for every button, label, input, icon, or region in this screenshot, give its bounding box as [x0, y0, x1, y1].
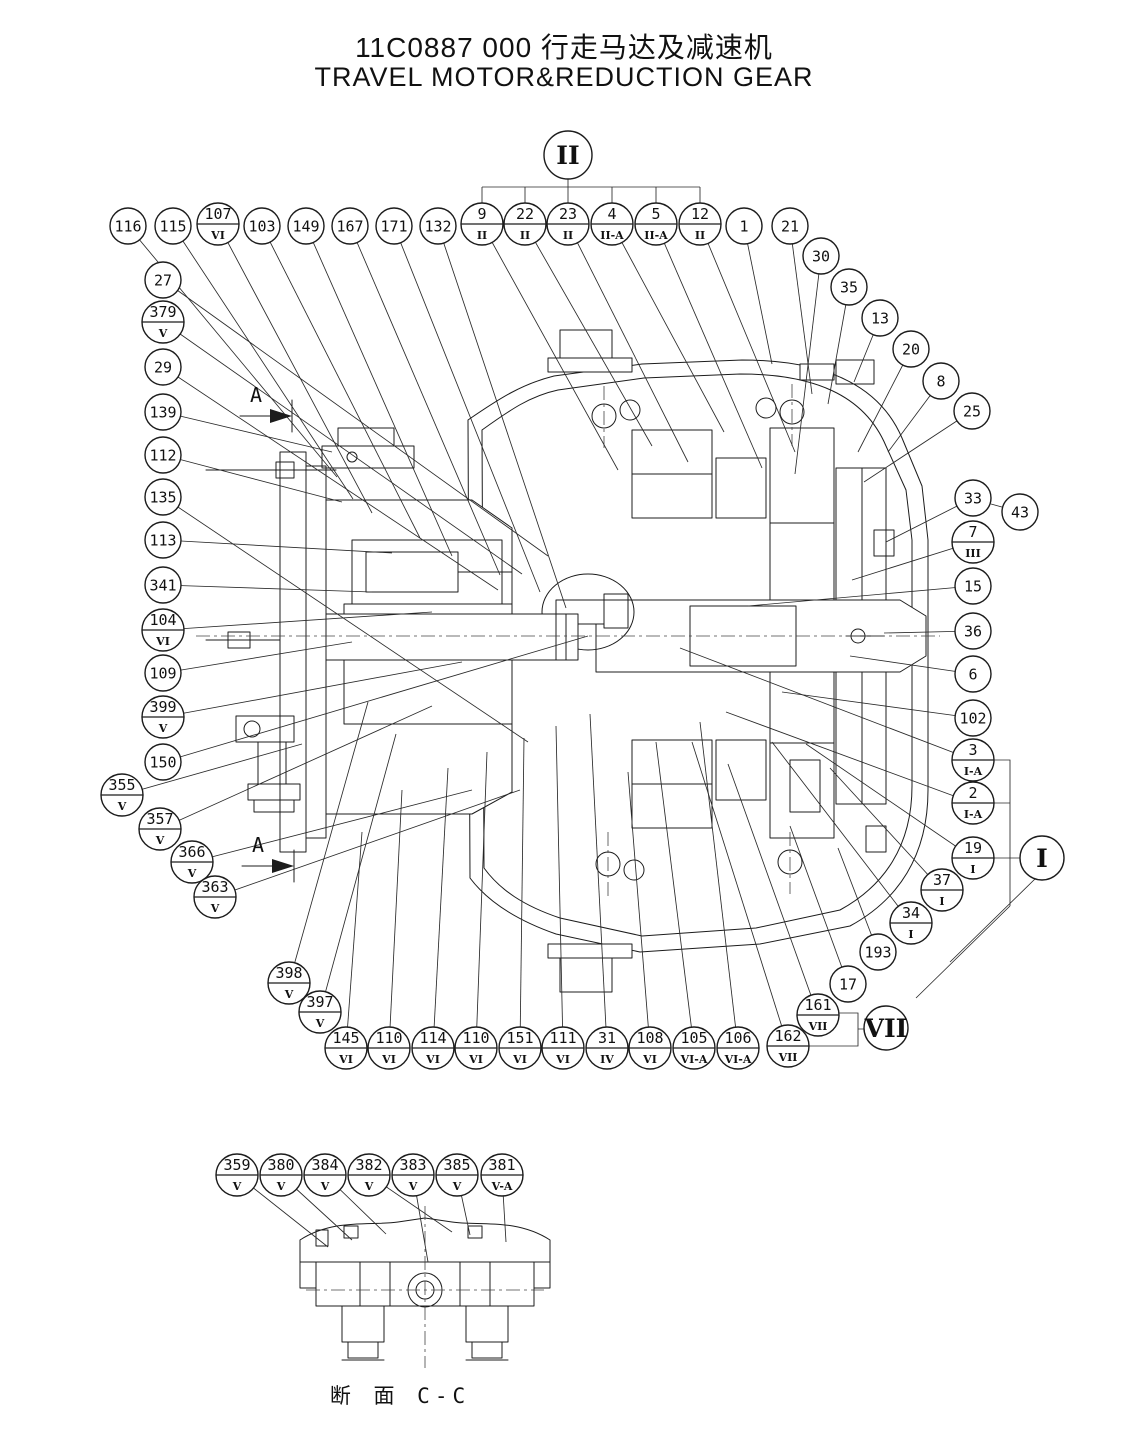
- svg-text:193: 193: [864, 944, 891, 962]
- svg-text:162: 162: [774, 1027, 801, 1045]
- svg-text:114: 114: [419, 1029, 446, 1047]
- svg-text:115: 115: [159, 218, 186, 236]
- balloon-108: 108VI: [629, 1027, 671, 1069]
- leader-line: [346, 832, 362, 1048]
- svg-text:VII: VII: [864, 1014, 908, 1043]
- balloon-33: 33: [955, 480, 991, 516]
- balloon-23: 23II: [547, 203, 589, 245]
- svg-text:113: 113: [149, 532, 176, 550]
- svg-text:VI: VI: [642, 1053, 657, 1066]
- balloon-149: 149: [288, 208, 324, 244]
- diagram-svg: 116115107VI1031491671711329II22II23II4II…: [0, 0, 1128, 1455]
- balloon-112: 112: [145, 437, 181, 473]
- svg-text:112: 112: [149, 447, 176, 465]
- svg-text:384: 384: [311, 1156, 338, 1174]
- svg-text:VI: VI: [512, 1053, 527, 1066]
- leader-line: [173, 226, 353, 499]
- svg-text:108: 108: [636, 1029, 663, 1047]
- balloon-107: 107VI: [197, 203, 239, 245]
- svg-text:A: A: [252, 833, 264, 857]
- svg-text:150: 150: [149, 754, 176, 772]
- svg-text:399: 399: [149, 698, 176, 716]
- svg-text:V: V: [408, 1180, 418, 1193]
- svg-text:V: V: [117, 800, 127, 813]
- detail-marker-I: I: [1020, 836, 1064, 880]
- leader-line: [163, 412, 332, 452]
- svg-text:22: 22: [516, 205, 534, 223]
- svg-text:V: V: [158, 327, 168, 340]
- leader-line: [389, 790, 402, 1048]
- balloon-135: 135: [145, 479, 181, 515]
- balloon-109: 109: [145, 655, 181, 691]
- svg-text:380: 380: [267, 1156, 294, 1174]
- balloon-132: 132: [420, 208, 456, 244]
- balloon-383: 383V: [392, 1154, 434, 1196]
- svg-text:20: 20: [902, 341, 920, 359]
- svg-text:139: 139: [149, 404, 176, 422]
- svg-text:30: 30: [812, 248, 830, 266]
- svg-text:VI: VI: [555, 1053, 570, 1066]
- svg-text:4: 4: [607, 205, 616, 223]
- svg-text:366: 366: [178, 843, 205, 861]
- svg-text:A: A: [250, 383, 262, 407]
- svg-text:VI: VI: [155, 635, 170, 648]
- svg-text:29: 29: [154, 359, 172, 377]
- svg-text:V: V: [155, 834, 165, 847]
- leader-line: [744, 226, 772, 364]
- balloon-29: 29: [145, 349, 181, 385]
- svg-text:109: 109: [149, 665, 176, 683]
- svg-text:I-A: I-A: [964, 808, 983, 821]
- svg-text:385: 385: [443, 1156, 470, 1174]
- svg-text:II: II: [477, 229, 487, 242]
- balloon-1: 1: [726, 208, 762, 244]
- balloon-13: 13: [862, 300, 898, 336]
- svg-text:35: 35: [840, 279, 858, 297]
- balloon-385: 385V: [436, 1154, 478, 1196]
- balloon-145: 145VI: [325, 1027, 367, 1069]
- balloon-110: 110VI: [455, 1027, 497, 1069]
- balloon-113: 113: [145, 522, 181, 558]
- balloon-399: 399V: [142, 696, 184, 738]
- svg-text:398: 398: [275, 964, 302, 982]
- balloon-17: 17: [830, 966, 866, 1002]
- svg-text:43: 43: [1011, 504, 1029, 522]
- balloon-36: 36: [955, 613, 991, 649]
- balloon-366: 366V: [171, 841, 213, 883]
- svg-text:I: I: [970, 863, 975, 876]
- balloon-150: 150: [145, 744, 181, 780]
- svg-text:171: 171: [380, 218, 407, 236]
- balloon-384: 384V: [304, 1154, 346, 1196]
- svg-text:VI: VI: [468, 1053, 483, 1066]
- svg-text:19: 19: [964, 839, 982, 857]
- balloon-380: 380V: [260, 1154, 302, 1196]
- svg-text:V: V: [232, 1180, 242, 1193]
- balloon-106: 106VI-A: [717, 1027, 759, 1069]
- svg-text:IV: IV: [600, 1053, 614, 1066]
- balloon-110: 110VI: [368, 1027, 410, 1069]
- balloon-7: 7III: [952, 521, 994, 563]
- svg-text:36: 36: [964, 623, 982, 641]
- svg-text:355: 355: [108, 776, 135, 794]
- svg-text:V: V: [315, 1017, 325, 1030]
- balloon-193: 193: [860, 934, 896, 970]
- balloon-12: 12II: [679, 203, 721, 245]
- balloon-397: 397V: [299, 991, 341, 1033]
- svg-text:23: 23: [559, 205, 577, 223]
- svg-text:V: V: [158, 722, 168, 735]
- section-view-linework: [300, 1206, 550, 1368]
- balloon-105: 105VI-A: [673, 1027, 715, 1069]
- balloon-19: 19I: [952, 837, 994, 879]
- svg-text:I: I: [1036, 844, 1048, 873]
- svg-text:27: 27: [154, 272, 172, 290]
- svg-text:III: III: [965, 547, 980, 560]
- svg-text:132: 132: [424, 218, 451, 236]
- svg-text:167: 167: [336, 218, 363, 236]
- balloon-363: 363V: [194, 876, 236, 918]
- svg-text:II: II: [520, 229, 530, 242]
- svg-text:VI: VI: [425, 1053, 440, 1066]
- balloon-4: 4II-A: [591, 203, 633, 245]
- balloon-31: 31IV: [586, 1027, 628, 1069]
- balloon-37: 37I: [921, 869, 963, 911]
- svg-text:107: 107: [204, 205, 231, 223]
- svg-text:8: 8: [936, 373, 945, 391]
- svg-text:I-A: I-A: [964, 765, 983, 778]
- balloon-8: 8: [923, 363, 959, 399]
- svg-text:6: 6: [968, 666, 977, 684]
- svg-text:II: II: [563, 229, 573, 242]
- svg-text:116: 116: [114, 218, 141, 236]
- svg-text:105: 105: [680, 1029, 707, 1047]
- balloon-21: 21: [772, 208, 808, 244]
- svg-text:363: 363: [201, 878, 228, 896]
- balloon-30: 30: [803, 238, 839, 274]
- svg-text:151: 151: [506, 1029, 533, 1047]
- balloon-355: 355V: [101, 774, 143, 816]
- svg-text:382: 382: [355, 1156, 382, 1174]
- svg-text:V: V: [320, 1180, 330, 1193]
- svg-text:V: V: [364, 1180, 374, 1193]
- svg-text:V: V: [276, 1180, 286, 1193]
- svg-text:II: II: [695, 229, 705, 242]
- svg-text:5: 5: [651, 205, 660, 223]
- balloon-115: 115: [155, 208, 191, 244]
- balloon-341: 341: [145, 567, 181, 603]
- leader-line: [262, 226, 420, 538]
- svg-text:381: 381: [488, 1156, 515, 1174]
- balloon-171: 171: [376, 208, 412, 244]
- balloon-15: 15: [955, 568, 991, 604]
- balloon-6: 6: [955, 656, 991, 692]
- svg-text:110: 110: [462, 1029, 489, 1047]
- balloon-20: 20: [893, 331, 929, 367]
- svg-text:357: 357: [146, 810, 173, 828]
- svg-text:149: 149: [292, 218, 319, 236]
- balloon-104: 104VI: [142, 609, 184, 651]
- svg-text:II-A: II-A: [600, 229, 624, 242]
- balloon-161: 161VII: [797, 994, 839, 1036]
- svg-text:359: 359: [223, 1156, 250, 1174]
- svg-text:341: 341: [149, 577, 176, 595]
- svg-text:1: 1: [739, 218, 748, 236]
- balloon-22: 22II: [504, 203, 546, 245]
- svg-text:9: 9: [477, 205, 486, 223]
- svg-text:VI: VI: [210, 229, 225, 242]
- svg-text:31: 31: [598, 1029, 616, 1047]
- balloon-103: 103: [244, 208, 280, 244]
- svg-text:383: 383: [399, 1156, 426, 1174]
- balloon-381: 381V-A: [481, 1154, 523, 1196]
- balloon-162: 162VII: [767, 1025, 809, 1067]
- svg-text:VI-A: VI-A: [724, 1053, 752, 1066]
- balloon-5: 5II-A: [635, 203, 677, 245]
- svg-text:VII: VII: [808, 1020, 828, 1033]
- drawing-page: 11C0887 000 行走马达及减速机 TRAVEL MOTOR&REDUCT…: [0, 0, 1128, 1455]
- detail-marker-II: II: [544, 131, 592, 179]
- balloon-2: 2I-A: [952, 782, 994, 824]
- svg-text:3: 3: [968, 741, 977, 759]
- balloon-382: 382V: [348, 1154, 390, 1196]
- balloon-357: 357V: [139, 808, 181, 850]
- balloon-114: 114VI: [412, 1027, 454, 1069]
- detail-bracket: [482, 179, 700, 203]
- balloon-25: 25: [954, 393, 990, 429]
- balloon-359: 359V: [216, 1154, 258, 1196]
- svg-text:135: 135: [149, 489, 176, 507]
- svg-text:110: 110: [375, 1029, 402, 1047]
- svg-text:VI-A: VI-A: [680, 1053, 708, 1066]
- svg-text:106: 106: [724, 1029, 751, 1047]
- svg-text:397: 397: [306, 993, 333, 1011]
- balloon-116: 116: [110, 208, 146, 244]
- svg-text:21: 21: [781, 218, 799, 236]
- svg-text:12: 12: [691, 205, 709, 223]
- svg-text:161: 161: [804, 996, 831, 1014]
- balloon-27: 27: [145, 262, 181, 298]
- svg-text:103: 103: [248, 218, 275, 236]
- svg-text:33: 33: [964, 490, 982, 508]
- svg-text:34: 34: [902, 904, 920, 922]
- balloon-379: 379V: [142, 301, 184, 343]
- svg-text:104: 104: [149, 611, 176, 629]
- svg-text:V: V: [284, 988, 294, 1001]
- balloon-43: 43: [1002, 494, 1038, 530]
- svg-text:V-A: V-A: [491, 1180, 513, 1193]
- svg-text:102: 102: [959, 710, 986, 728]
- svg-text:VI: VI: [381, 1053, 396, 1066]
- svg-text:II: II: [556, 141, 579, 170]
- balloon-35: 35: [831, 269, 867, 305]
- svg-text:145: 145: [332, 1029, 359, 1047]
- svg-text:111: 111: [549, 1029, 576, 1047]
- svg-text:13: 13: [871, 310, 889, 328]
- svg-text:15: 15: [964, 578, 982, 596]
- svg-text:17: 17: [839, 976, 857, 994]
- balloon-167: 167: [332, 208, 368, 244]
- svg-text:II-A: II-A: [644, 229, 668, 242]
- balloon-34: 34I: [890, 902, 932, 944]
- section-arrow-A2: A: [242, 833, 294, 882]
- balloon-9: 9II: [461, 203, 503, 245]
- balloon-151: 151VI: [499, 1027, 541, 1069]
- svg-text:379: 379: [149, 303, 176, 321]
- svg-text:I: I: [939, 895, 944, 908]
- svg-text:V: V: [210, 902, 220, 915]
- balloon-3: 3I-A: [952, 739, 994, 781]
- balloon-111: 111VI: [542, 1027, 584, 1069]
- balloon-102: 102: [955, 700, 991, 736]
- balloon-139: 139: [145, 394, 181, 430]
- svg-text:7: 7: [968, 523, 977, 541]
- svg-text:VI: VI: [338, 1053, 353, 1066]
- svg-text:25: 25: [963, 403, 981, 421]
- machine-linework: [196, 330, 940, 992]
- svg-text:37: 37: [933, 871, 951, 889]
- svg-text:V: V: [452, 1180, 462, 1193]
- svg-text:VII: VII: [778, 1051, 798, 1064]
- detail-marker-VII: VII: [864, 1006, 908, 1050]
- svg-text:I: I: [908, 928, 913, 941]
- svg-text:V: V: [187, 867, 197, 880]
- svg-text:2: 2: [968, 784, 977, 802]
